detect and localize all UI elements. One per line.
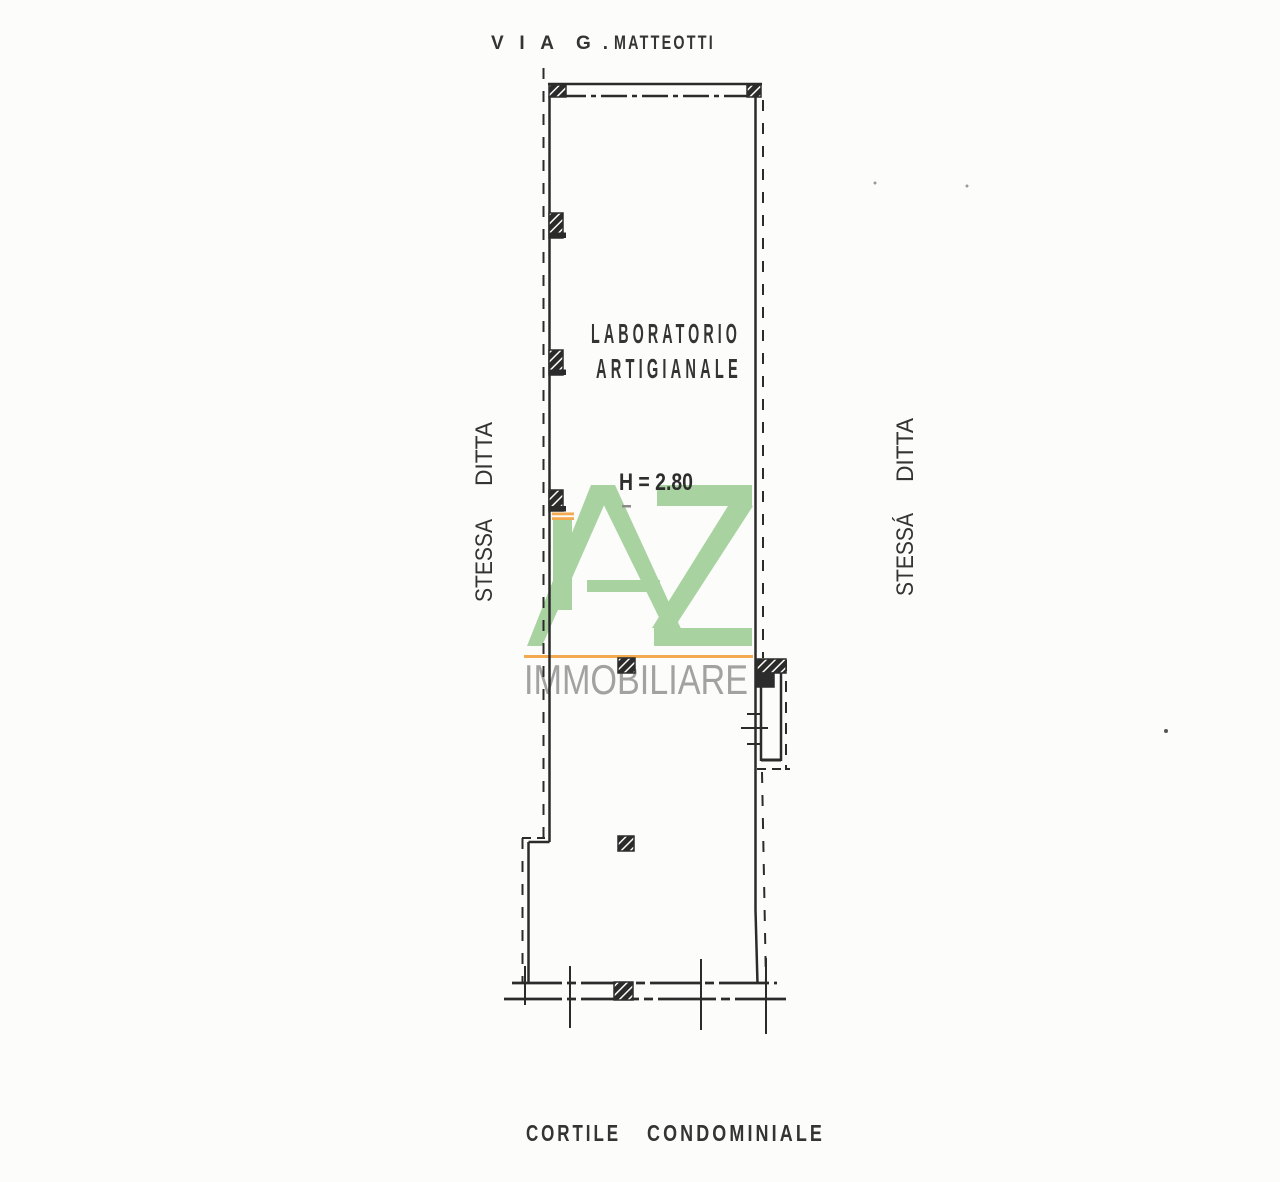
svg-text:H = 2.80: H = 2.80 — [619, 469, 693, 496]
svg-text:ARTIGIANALE: ARTIGIANALE — [596, 353, 742, 384]
svg-text:MATTEOTTI: MATTEOTTI — [614, 33, 715, 54]
svg-text:LABORATORIO: LABORATORIO — [591, 318, 741, 349]
svg-text:VIA: VIA — [491, 33, 554, 54]
svg-text:CONDOMINIALE: CONDOMINIALE — [647, 1120, 825, 1146]
svg-text:DITTA: DITTA — [471, 422, 498, 486]
svg-text:CORTILE: CORTILE — [526, 1120, 621, 1146]
svg-text:STESSÁ: STESSÁ — [892, 513, 919, 596]
svg-text:STESSA: STESSA — [471, 519, 498, 602]
svg-text:DITTA: DITTA — [892, 418, 919, 482]
svg-text:IMMOBILIARE: IMMOBILIARE — [524, 656, 748, 703]
svg-text:G.: G. — [576, 33, 608, 54]
